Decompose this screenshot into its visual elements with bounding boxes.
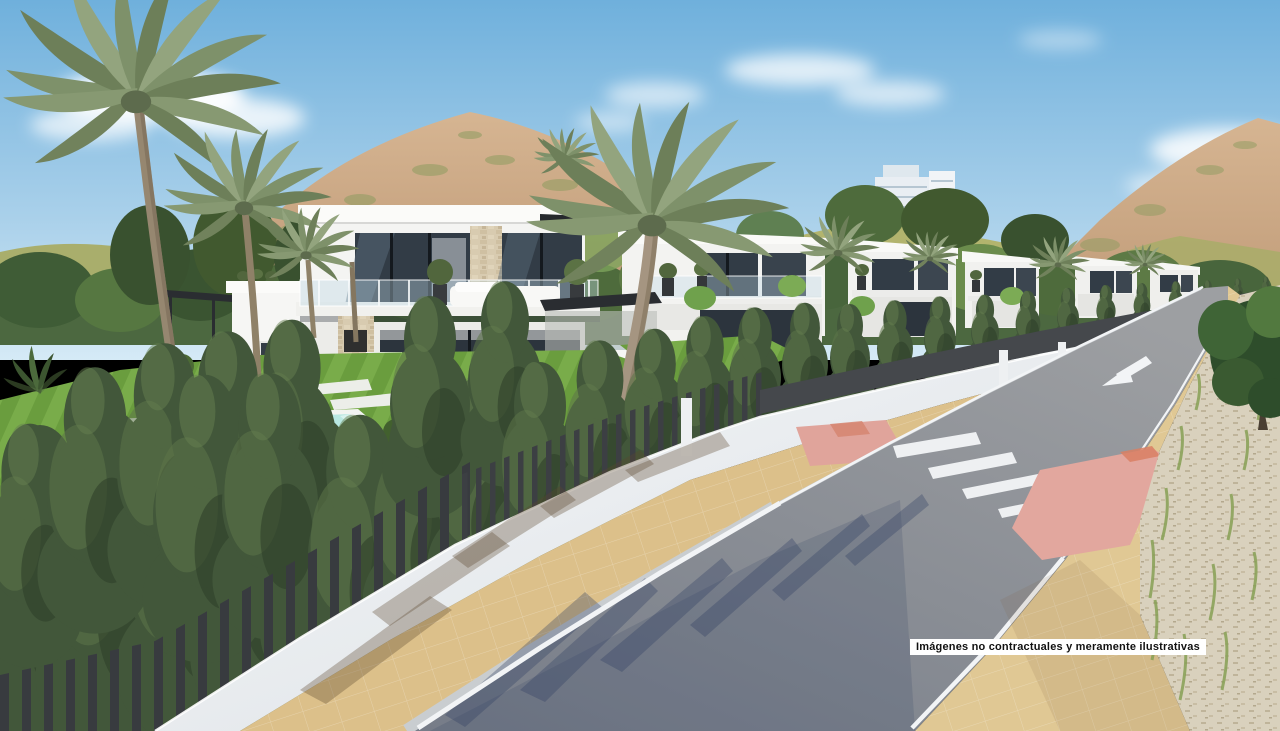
cloud [605, 82, 705, 108]
cloud [1018, 30, 1102, 50]
render-image: Imágenes no contractuales y meramente il… [0, 0, 1280, 731]
cloud [835, 81, 945, 107]
scene-canvas [0, 0, 1280, 731]
cloud [725, 54, 875, 86]
disclaimer-label: Imágenes no contractuales y meramente il… [910, 639, 1206, 655]
